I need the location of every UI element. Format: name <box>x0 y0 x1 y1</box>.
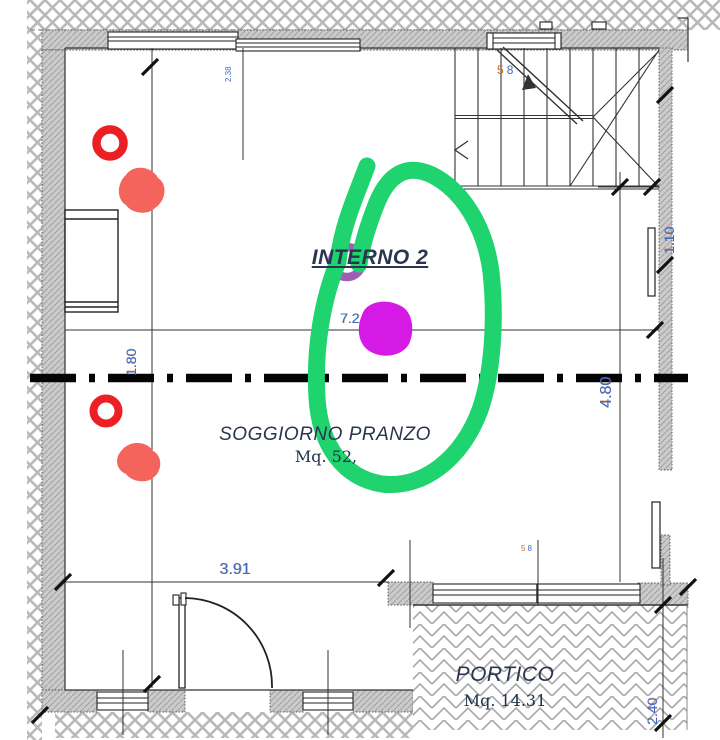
entry-door <box>173 593 272 688</box>
floor-plan-drawing <box>0 0 720 740</box>
red-blob-annotation-1 <box>119 168 165 213</box>
sofa <box>65 210 118 312</box>
red-ring-annotation-1 <box>97 130 124 157</box>
red-ring-annotation-2 <box>94 399 119 424</box>
right-side-frames <box>648 228 660 568</box>
staircase <box>455 47 659 189</box>
floor-plan-page: INTERNO 2 SOGGIORNO PRANZO Mq. 52, PORTI… <box>0 0 720 740</box>
red-blob-annotation-2 <box>117 443 160 481</box>
portico-paving <box>413 605 688 730</box>
magenta-blob-annotation <box>359 302 413 356</box>
